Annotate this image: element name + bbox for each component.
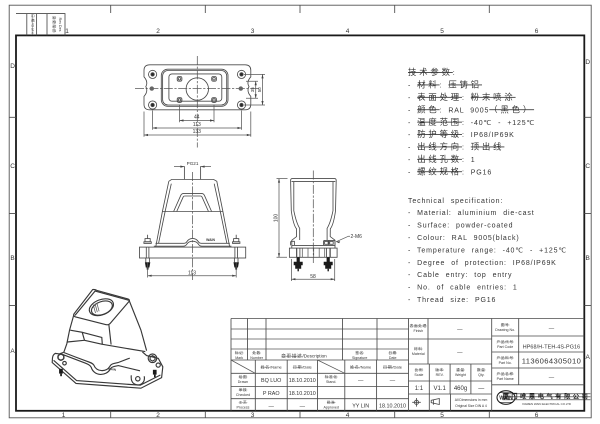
svg-text:姓名/Name: 姓名/Name — [350, 364, 372, 370]
svg-text:Approved: Approved — [324, 406, 339, 410]
svg-text:—: — — [269, 404, 275, 410]
svg-text:Mark: Mark — [235, 356, 243, 360]
svg-text:WAIN: WAIN — [206, 238, 215, 242]
svg-text:—: — — [457, 327, 463, 333]
svg-text:批准: 批准 — [327, 400, 336, 405]
svg-text:- Degree of protection: IP68/I: - Degree of protection: IP68/IP69K — [408, 260, 557, 267]
svg-text:35: 35 — [250, 87, 255, 92]
svg-text:- 温度范围: -40℃ - +125℃: - 温度范围: -40℃ - +125℃ — [408, 117, 535, 127]
svg-text:C: C — [585, 163, 590, 170]
svg-text:1:1: 1:1 — [415, 386, 424, 392]
svg-text:B: B — [10, 255, 14, 262]
svg-text:Date: Date — [389, 356, 397, 360]
svg-text:Checked: Checked — [236, 393, 250, 397]
svg-text:—: — — [549, 375, 555, 381]
svg-text:113: 113 — [188, 270, 196, 276]
svg-text:18.10.2010: 18.10.2010 — [289, 391, 316, 397]
svg-text:- Cable entry: top entry: - Cable entry: top entry — [408, 272, 512, 279]
svg-text:日期/Date: 日期/Date — [31, 14, 36, 35]
svg-text:- Thread size: PG16: - Thread size: PG16 — [408, 297, 496, 304]
svg-text:V1.1: V1.1 — [434, 386, 447, 392]
svg-text:Stand.: Stand. — [326, 380, 336, 384]
svg-text:—: — — [358, 378, 364, 384]
svg-text:1136064305010: 1136064305010 — [522, 357, 582, 366]
svg-text:460g: 460g — [454, 386, 467, 392]
svg-text:50: 50 — [257, 87, 262, 92]
svg-text:- 出线方向: 顶出线: - 出线方向: 顶出线 — [408, 142, 504, 152]
svg-text:Signature: Signature — [352, 356, 367, 360]
svg-text:—: — — [549, 326, 555, 332]
svg-text:处数: 处数 — [252, 350, 261, 355]
svg-text:- Colour: RAL 9005(black): - Colour: RAL 9005(black) — [408, 235, 520, 242]
svg-text:HP68/H-TEH-4S-PG16: HP68/H-TEH-4S-PG16 — [523, 345, 581, 351]
svg-text:数量: 数量 — [477, 367, 486, 372]
svg-text:C: C — [10, 163, 15, 170]
svg-text:BQ LUO: BQ LUO — [261, 378, 281, 384]
svg-text:Material: Material — [412, 352, 425, 356]
svg-text:100: 100 — [274, 214, 280, 223]
svg-text:—: — — [300, 404, 306, 410]
svg-text:—: — — [478, 386, 484, 392]
svg-text:材料: 材料 — [414, 346, 423, 351]
svg-text:18.10.2010: 18.10.2010 — [379, 404, 406, 410]
svg-text:工艺: 工艺 — [239, 400, 248, 405]
svg-text:—: — — [457, 350, 463, 356]
svg-text:日期: 日期 — [388, 350, 397, 355]
svg-text:- 出线孔数: 1: - 出线孔数: 1 — [408, 154, 476, 164]
svg-text:4: 4 — [346, 28, 350, 35]
svg-text:Drawn: Drawn — [238, 380, 248, 384]
svg-text:厦门唯恩电气有限公司: 厦门唯恩电气有限公司 — [502, 393, 591, 401]
svg-text:133: 133 — [193, 129, 202, 135]
svg-text:REV.: REV. — [436, 373, 444, 377]
svg-text:绘图: 绘图 — [239, 374, 248, 379]
svg-text:变更描述/Description: 变更描述/Description — [281, 353, 327, 360]
svg-text:版本: 版本 — [435, 367, 444, 372]
svg-text:All Dimensions in mm: All Dimensions in mm — [455, 398, 488, 402]
svg-text:6: 6 — [535, 28, 539, 35]
svg-text:P RAO: P RAO — [263, 391, 280, 397]
svg-text:Number: Number — [250, 356, 264, 360]
svg-text:- 颜色: RAL 9005（黑色）: - 颜色: RAL 9005（黑色） — [408, 104, 534, 114]
svg-text:Part Name: Part Name — [497, 377, 514, 381]
svg-text:1: 1 — [65, 28, 69, 35]
svg-text:5: 5 — [440, 412, 444, 419]
svg-text:- Surface: powder-coated: - Surface: powder-coated — [408, 223, 513, 230]
svg-text:PG21: PG21 — [187, 161, 199, 166]
svg-text:产品料号: 产品料号 — [497, 355, 514, 360]
svg-text:- 材料: 压铸铝: - 材料: 压铸铝 — [408, 80, 482, 90]
svg-text:- Temperature range: -40℃ - +1: - Temperature range: -40℃ - +125℃ — [408, 247, 567, 254]
svg-text:1: 1 — [62, 412, 66, 419]
svg-text:产品代号: 产品代号 — [497, 339, 514, 344]
svg-text:2: 2 — [156, 28, 160, 35]
svg-text:Original Size DIN A 4: Original Size DIN A 4 — [455, 404, 487, 408]
svg-text:44: 44 — [194, 115, 200, 121]
svg-text:图号: 图号 — [501, 322, 510, 327]
svg-text:Part Code: Part Code — [497, 345, 513, 349]
svg-text:D: D — [10, 63, 15, 70]
svg-text:- 防护等级: IP68/IP69K: - 防护等级: IP68/IP69K — [408, 129, 515, 139]
svg-text:- 表面处理: 粉末喷涂: - 表面处理: 粉末喷涂 — [408, 92, 516, 102]
svg-text:姓名/Name: 姓名/Name — [261, 364, 283, 370]
svg-text:58: 58 — [310, 274, 316, 280]
svg-text:表面处理: 表面处理 — [410, 323, 427, 328]
svg-text:- Material: aluminium die-cast: - Material: aluminium die-cast — [408, 210, 535, 217]
svg-text:Finish: Finish — [414, 329, 424, 333]
svg-text:Qty.: Qty. — [478, 373, 484, 377]
svg-text:Drawing No.: Drawing No. — [495, 328, 515, 332]
svg-text:比例: 比例 — [415, 367, 424, 372]
svg-text:- 螺纹规格: PG16: - 螺纹规格: PG16 — [408, 166, 492, 176]
svg-text:- No. of cable entries: 1: - No. of cable entries: 1 — [408, 285, 518, 292]
svg-text:Weight: Weight — [455, 373, 466, 377]
svg-text:3: 3 — [251, 412, 255, 419]
svg-text:2: 2 — [156, 412, 160, 419]
svg-text:标准化: 标准化 — [325, 374, 338, 379]
svg-text:XIAMEN WAIN ELECTRICAL CO.LTD: XIAMEN WAIN ELECTRICAL CO.LTD — [522, 402, 571, 406]
svg-text:日期/Date: 日期/Date — [293, 364, 313, 370]
svg-text:Technical specification:: Technical specification: — [408, 198, 503, 205]
svg-text:A: A — [10, 348, 15, 355]
svg-text:—: — — [390, 378, 396, 384]
svg-text:4: 4 — [346, 412, 350, 419]
svg-text:5: 5 — [440, 28, 444, 35]
svg-text:113: 113 — [193, 122, 201, 128]
svg-text:审核: 审核 — [239, 387, 248, 392]
svg-text:重量: 重量 — [456, 367, 465, 372]
svg-text:B: B — [586, 255, 590, 262]
svg-text:Scale: Scale — [414, 373, 423, 377]
svg-text:变更描述: 变更描述 — [52, 16, 57, 33]
svg-text:产品名称: 产品名称 — [497, 371, 514, 376]
svg-text:2-M6: 2-M6 — [351, 234, 363, 240]
svg-text:18.10.2010: 18.10.2010 — [289, 378, 316, 384]
svg-text:Part No.: Part No. — [499, 361, 512, 365]
svg-text:D: D — [585, 59, 590, 66]
svg-text:A: A — [586, 354, 591, 361]
svg-text:Rev Des: Rev Des — [58, 18, 62, 32]
svg-text:6: 6 — [535, 412, 539, 419]
svg-text:签名: 签名 — [355, 350, 364, 355]
svg-text:YY LIN: YY LIN — [352, 404, 369, 410]
svg-text:Process: Process — [237, 406, 250, 410]
svg-text:3: 3 — [251, 28, 255, 35]
svg-text:技术参数:: 技术参数: — [408, 67, 456, 77]
svg-text:标记: 标记 — [235, 350, 244, 355]
svg-text:日期/Date: 日期/Date — [383, 364, 403, 370]
